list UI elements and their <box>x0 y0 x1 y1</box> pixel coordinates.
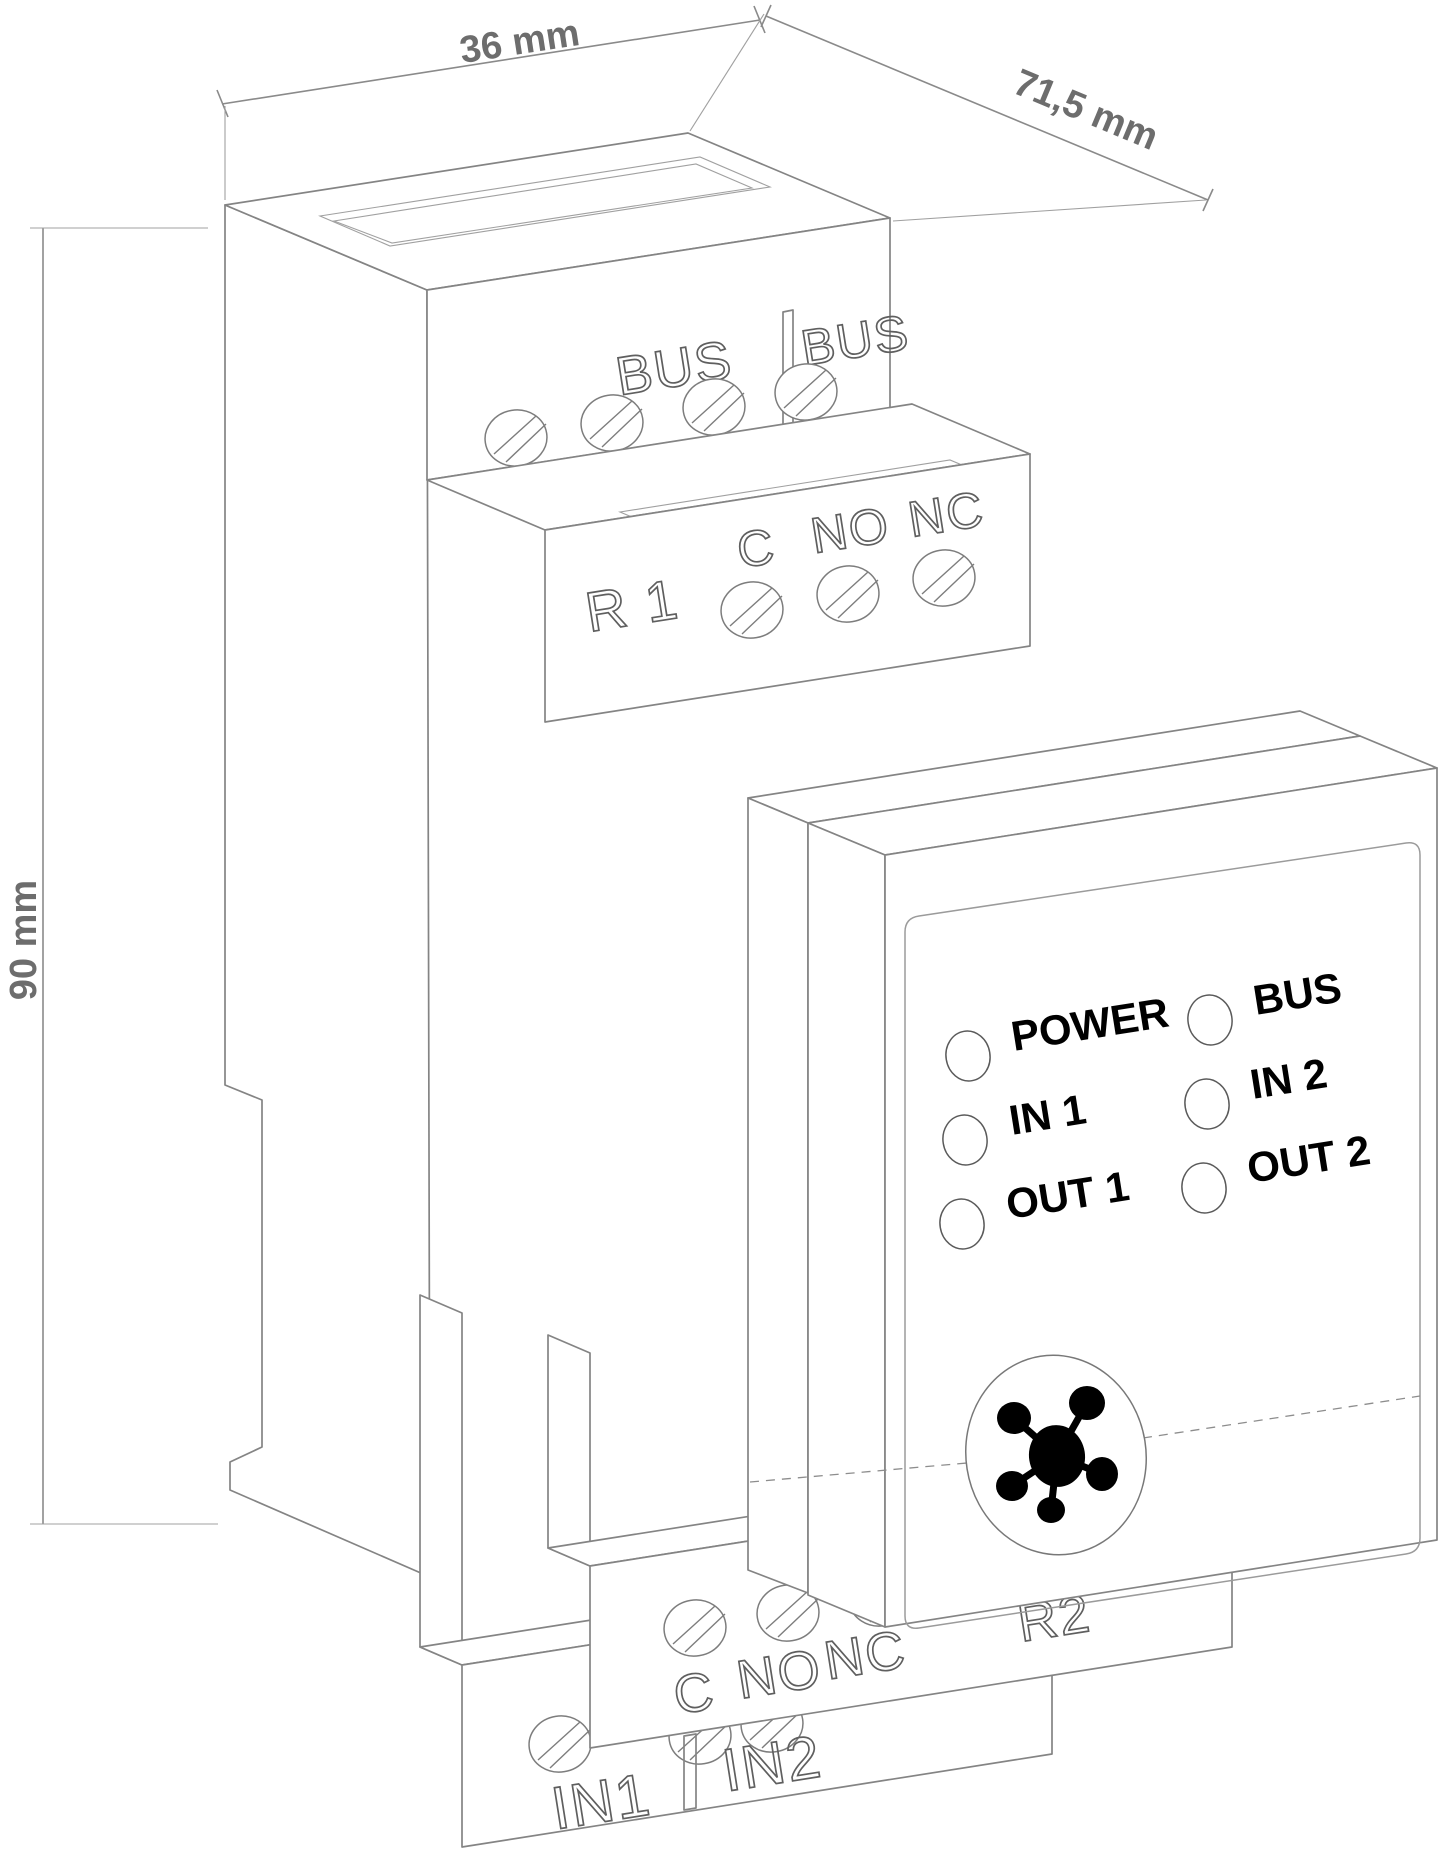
extension-line <box>690 14 764 131</box>
relay2-contact-nc-label: NC <box>820 1619 910 1691</box>
panel-side-lip-face <box>808 823 885 1627</box>
height-dimension-label: 90 mm <box>3 880 45 1000</box>
panel-side-face <box>748 798 808 1593</box>
relay2-block-side-face <box>548 1335 590 1566</box>
panel-front-face <box>885 768 1437 1627</box>
dimension-tick <box>754 6 765 33</box>
input-block-side-face <box>420 1295 462 1665</box>
din-module-isometric-drawing: 36 mm 71,5 mm 90 mm IN1 <box>0 0 1440 1876</box>
width-dimension-label: 36 mm <box>457 12 582 72</box>
extension-line <box>893 200 1206 221</box>
relay1-contact-nc-label: NC <box>904 481 988 548</box>
front-panel-block: POWER IN 1 OUT 1 BUS IN 2 OUT 2 <box>748 711 1437 1628</box>
technical-drawing-page: 36 mm 71,5 mm 90 mm IN1 <box>0 0 1440 1876</box>
dimension-line-depth <box>766 16 1208 200</box>
input1-terminal-label: IN1 <box>547 1761 656 1843</box>
din-rail-side-profile <box>225 205 430 1577</box>
dimension-depth: 71,5 mm <box>761 5 1213 221</box>
depth-dimension-label: 71,5 mm <box>1007 62 1164 159</box>
dimension-height: 90 mm <box>3 228 218 1524</box>
